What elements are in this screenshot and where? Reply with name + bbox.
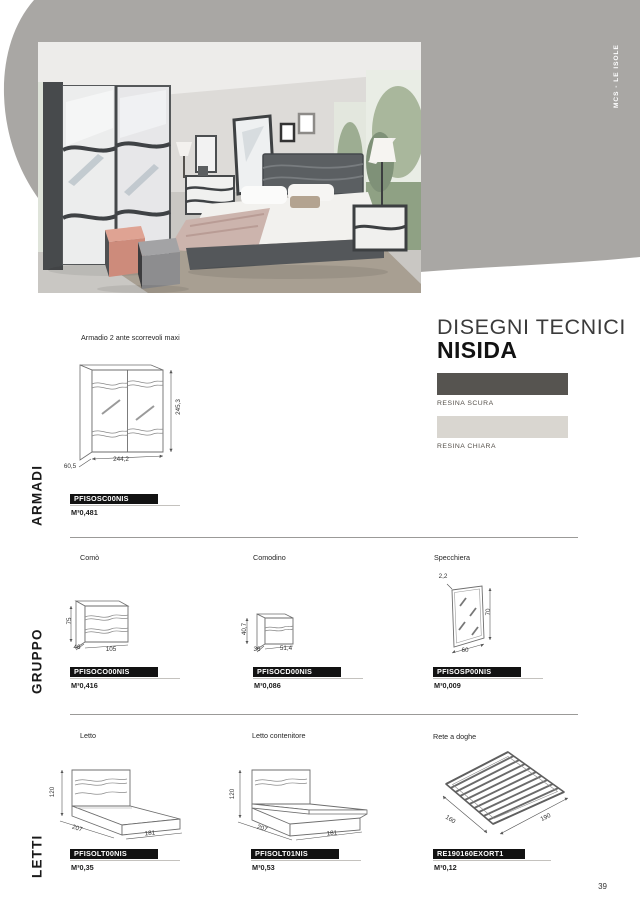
section-label-gruppo: GRUPPO	[28, 626, 46, 694]
product-code-como: PFISOCO00NIS	[70, 667, 158, 677]
section-divider	[70, 537, 578, 538]
dim-como-width: 105	[100, 646, 122, 654]
finish-label-dark: RESINA SCURA	[437, 400, 494, 407]
brand-vertical-label: MCS - LE ISOLE	[613, 36, 620, 108]
product-volume-specchiera: M³0,009	[434, 681, 461, 690]
product-name-letto: Letto	[80, 731, 96, 740]
product-code-letto-contenitore: PFISOLT01NIS	[251, 849, 339, 859]
product-volume-comodino: M³0,086	[254, 681, 281, 690]
product-code-armadio: PFISOSC00NIS	[70, 494, 158, 504]
product-volume-armadio: M³0,481	[71, 508, 98, 517]
letto-contenitore-drawing	[226, 758, 372, 842]
product-name-rete: Rete a doghe	[433, 732, 476, 741]
product-volume-letto: M³0,35	[71, 863, 94, 872]
product-name-como: Comò	[80, 553, 99, 562]
finish-swatch-light	[437, 416, 568, 438]
product-name-comodino: Comodino	[253, 553, 286, 562]
page-number: 39	[589, 882, 607, 891]
dim-specchiera-thickness: 2,2	[435, 573, 451, 581]
dim-armadio-width: 244,2	[106, 456, 136, 464]
product-name-letto-contenitore: Letto contenitore	[252, 731, 306, 740]
collection-name: NISIDA	[437, 337, 517, 364]
bedroom-photo	[38, 42, 421, 293]
dim-como-height: 75	[66, 608, 74, 634]
dim-comodino-width: 51,4	[276, 645, 296, 653]
product-volume-rete: M³0,12	[434, 863, 457, 872]
product-volume-como: M³0,416	[71, 681, 98, 690]
dim-comodino-height: 40,7	[241, 616, 249, 642]
finish-label-light: RESINA CHIARA	[437, 443, 496, 450]
dim-letto-height: 120	[49, 779, 57, 805]
dim-letto-contenitore-height: 120	[229, 781, 237, 807]
dim-comodino-depth: 36	[250, 646, 264, 654]
section-divider	[70, 714, 578, 715]
dim-specchiera-height: 70	[485, 599, 493, 625]
dim-specchiera-width: 60	[455, 647, 475, 655]
product-volume-letto-contenitore: M³0,53	[252, 863, 275, 872]
dim-como-depth: 46	[70, 644, 84, 652]
section-label-armadi: ARMADI	[28, 458, 46, 526]
product-code-rete: RE190160EXORT1	[433, 849, 525, 859]
product-code-letto: PFISOLT00NIS	[70, 849, 158, 859]
catalog-page: MCS - LE ISOLE	[0, 0, 640, 918]
finish-swatch-dark	[437, 373, 568, 395]
section-label-letti: LETTI	[28, 832, 46, 878]
product-name-armadio: Armadio 2 ante scorrevoli maxi	[81, 333, 180, 342]
product-code-comodino: PFISOCD00NIS	[253, 667, 341, 677]
dim-armadio-depth: 60,5	[60, 463, 80, 471]
dim-armadio-height: 245,3	[175, 394, 183, 420]
product-code-specchiera: PFISOSP00NIS	[433, 667, 521, 677]
product-name-specchiera: Specchiera	[434, 553, 470, 562]
